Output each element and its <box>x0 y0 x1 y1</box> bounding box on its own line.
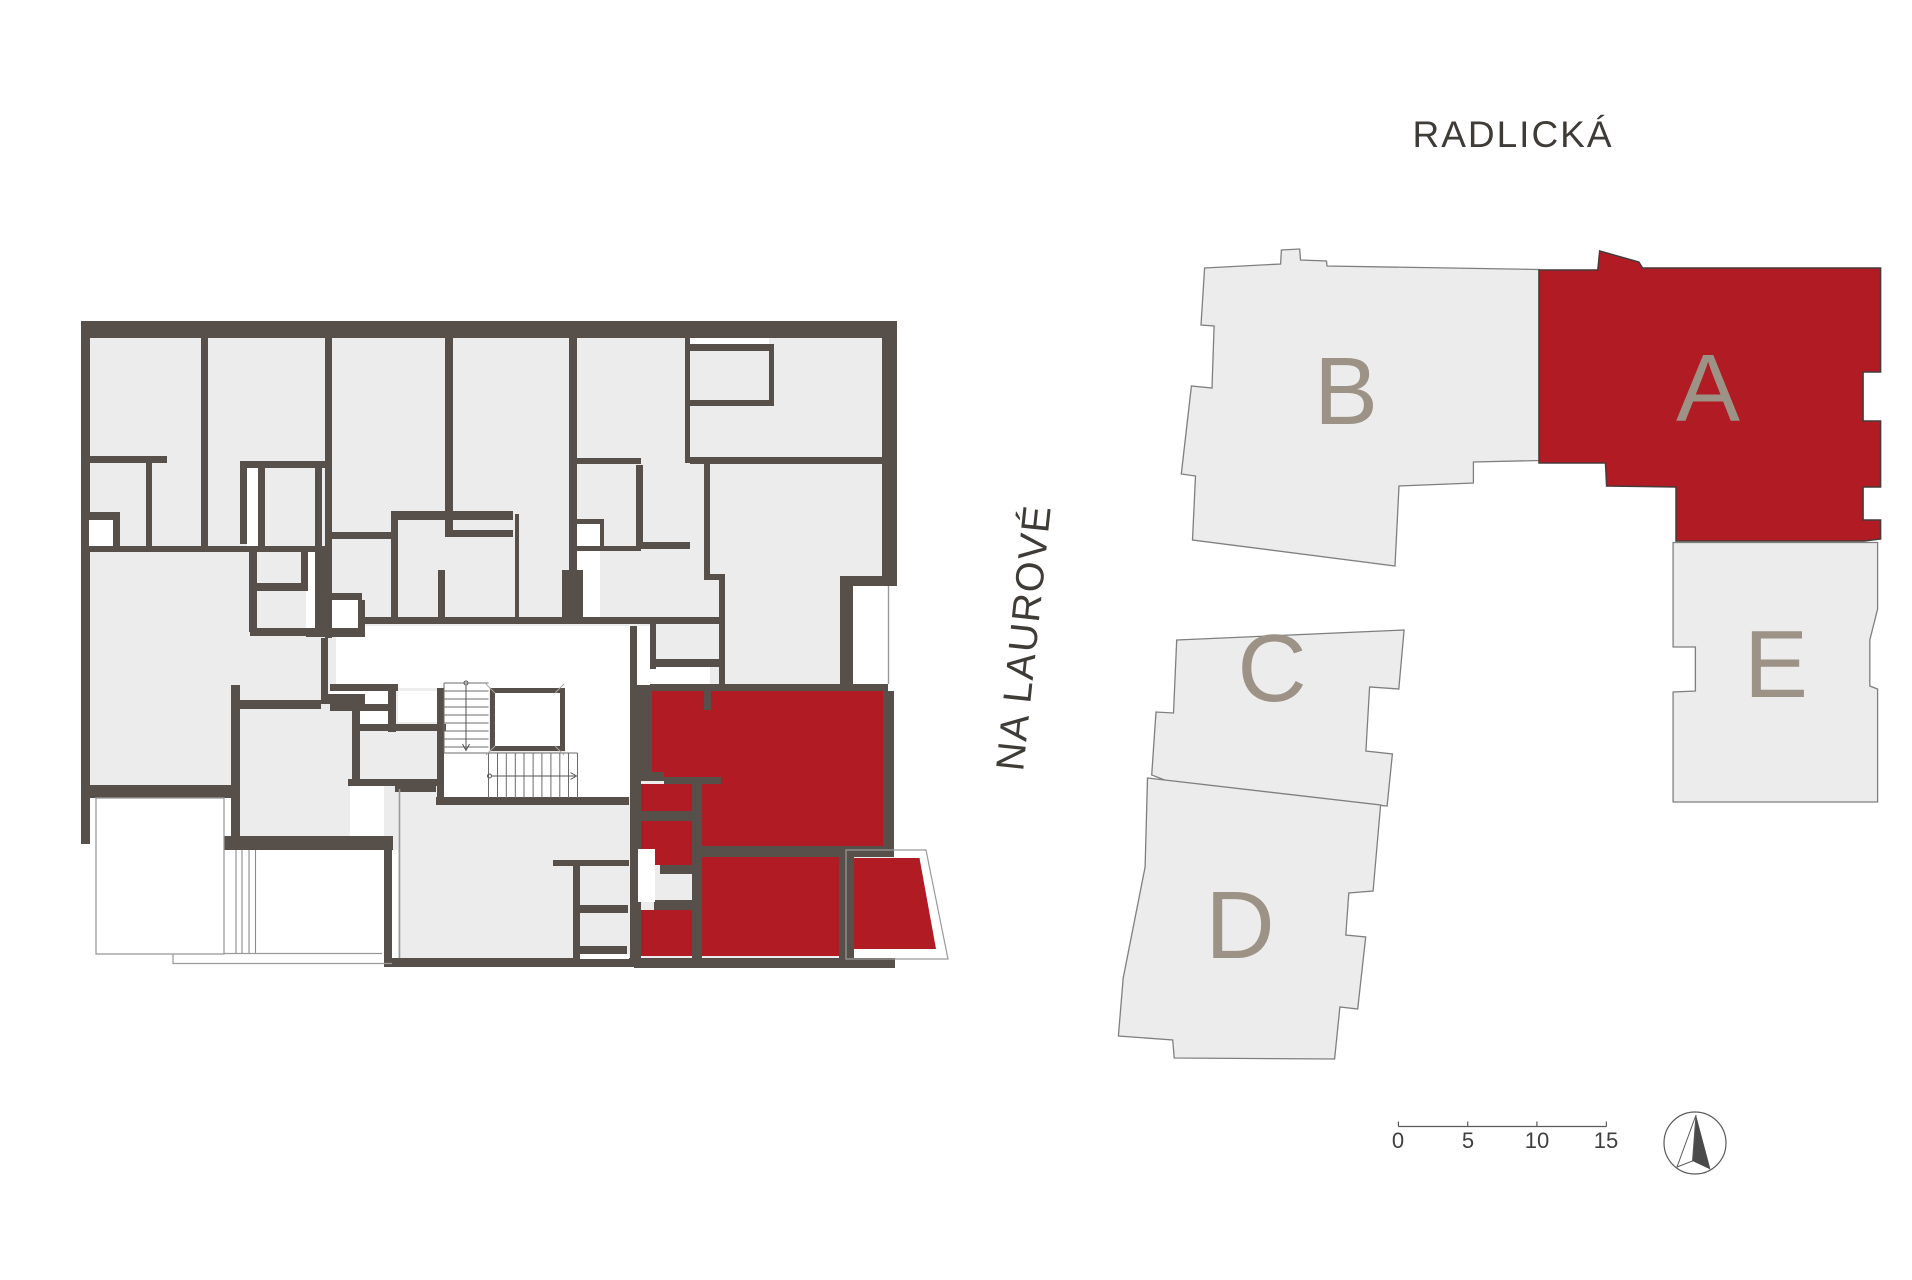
svg-text:RADLICKÁ: RADLICKÁ <box>1412 114 1613 155</box>
svg-text:A: A <box>1676 335 1740 442</box>
svg-text:C: C <box>1237 615 1306 722</box>
svg-text:B: B <box>1314 338 1378 445</box>
svg-text:D: D <box>1205 872 1274 979</box>
svg-text:10: 10 <box>1525 1128 1549 1153</box>
svg-text:E: E <box>1744 611 1808 718</box>
svg-text:0: 0 <box>1392 1128 1404 1153</box>
svg-text:5: 5 <box>1462 1128 1474 1153</box>
svg-text:15: 15 <box>1594 1128 1618 1153</box>
